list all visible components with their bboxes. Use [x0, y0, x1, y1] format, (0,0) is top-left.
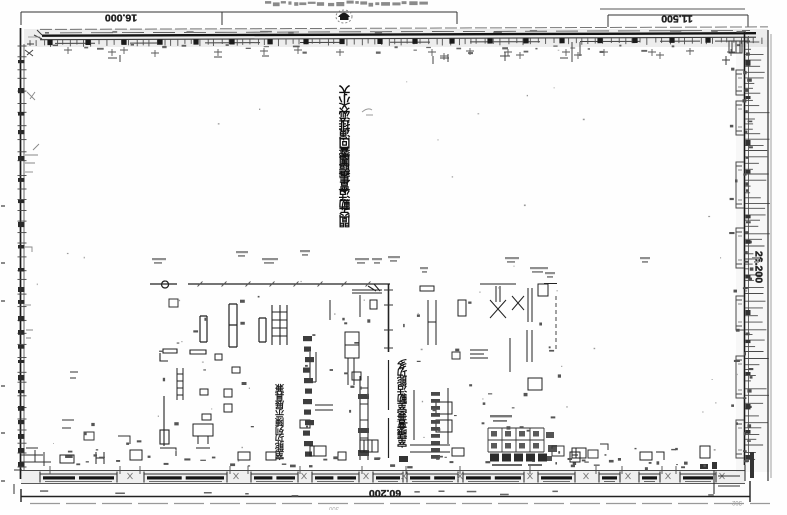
svg-text:26.200: 26.200	[753, 251, 765, 283]
svg-text:300: 300	[328, 505, 339, 510]
svg-text:間: 間	[339, 215, 351, 228]
svg-text:室: 室	[397, 436, 407, 449]
svg-text:302: 302	[731, 499, 742, 505]
svg-text:16.000: 16.000	[105, 12, 137, 24]
svg-text:11.500: 11.500	[661, 13, 693, 25]
svg-text:60.200: 60.200	[369, 487, 401, 499]
